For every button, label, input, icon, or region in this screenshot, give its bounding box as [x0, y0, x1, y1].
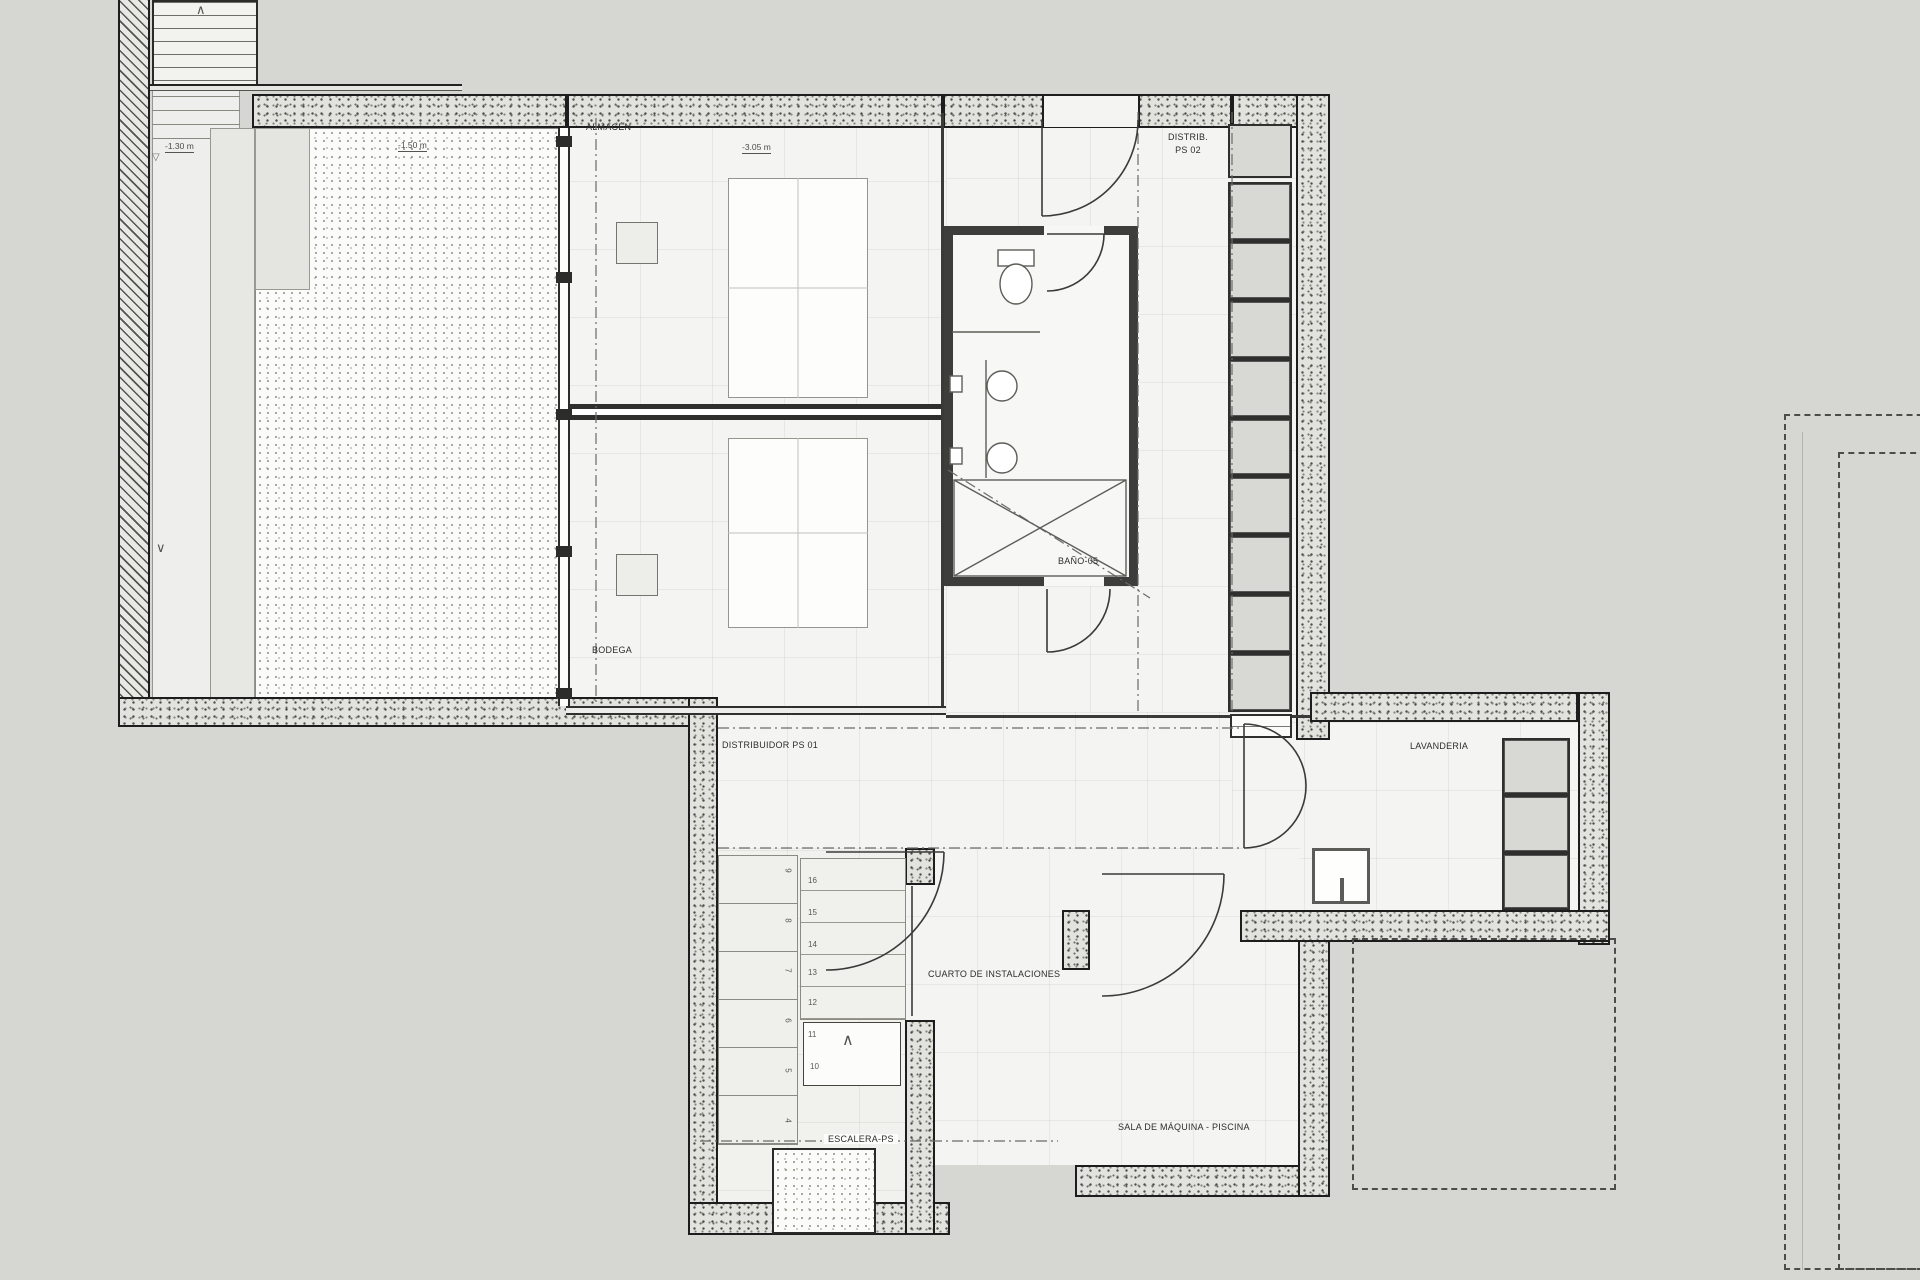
- bathroom-walls: [944, 226, 1138, 586]
- lavanderia-east-wall: [1578, 692, 1610, 945]
- stair-void-stipple: [772, 1148, 876, 1234]
- level-label-terrace: -1.50 m: [398, 140, 427, 152]
- level-marker-icon: ▽: [152, 152, 160, 163]
- room-label-distrib-ps02-line2: PS 02: [1152, 145, 1224, 155]
- column-box-1: [616, 222, 658, 264]
- left-retaining-wall: [118, 0, 150, 715]
- pier: [565, 94, 569, 128]
- room-label-sala: SALA DE MÁQUINA - PISCINA: [1118, 1122, 1250, 1132]
- stair-side-flight: [718, 855, 798, 1145]
- storage-rack-1: [728, 178, 868, 398]
- stair-direction-up-icon: ∧: [196, 2, 206, 18]
- stair-number: 11: [808, 1030, 816, 1039]
- stair-direction-down-icon: ∨: [156, 540, 166, 556]
- window-mullion: [556, 409, 572, 420]
- floor-plan-canvas: ∧ ∨: [0, 0, 1920, 1280]
- room-label-lavanderia: LAVANDERIA: [1410, 741, 1468, 751]
- almacen-bodega-divider-wall: [566, 404, 946, 420]
- sala-south-wall: [1075, 1165, 1330, 1197]
- terrace-planter: [255, 128, 310, 290]
- stair-number: 13: [808, 968, 817, 977]
- north-wall: [252, 94, 1330, 128]
- level-label-exterior: -1.30 m: [165, 141, 194, 153]
- stair-number-side: 8: [784, 918, 793, 922]
- window-mullion: [556, 272, 572, 283]
- stair-number: 15: [808, 908, 817, 917]
- stair-number-side: 5: [784, 1068, 793, 1072]
- lavanderia-north-wall: [1310, 692, 1578, 722]
- window-mullion: [556, 136, 572, 147]
- room-label-escalera: ESCALERA-PS: [824, 1134, 898, 1144]
- stair-number: 14: [808, 940, 817, 949]
- column-box-2: [616, 554, 658, 596]
- stair-number: 16: [808, 876, 817, 885]
- window-mullion: [556, 688, 572, 699]
- corridor-west-wall: [688, 697, 718, 1235]
- sala-east-wall: [1298, 940, 1330, 1197]
- window-mullion: [556, 546, 572, 557]
- stair-number-side: 7: [784, 968, 793, 972]
- stair-number-side: 6: [784, 1018, 793, 1022]
- stair-number-side: 9: [784, 868, 793, 872]
- pier: [1230, 94, 1234, 128]
- escalera-east-wall-top: [905, 848, 935, 885]
- stair-number-side: 4: [784, 1118, 793, 1122]
- retaining-edge: [150, 84, 462, 91]
- bodega-south-wall: [566, 706, 946, 715]
- sala-west-stub-wall: [1062, 910, 1090, 970]
- storage-rack-2: [728, 438, 868, 628]
- east-wall-upper: [1296, 94, 1330, 740]
- bathroom-door-gap-bottom: [1044, 576, 1104, 586]
- upper-floor-projection: [1352, 938, 1616, 1190]
- stair-number: 12: [808, 998, 817, 1007]
- closet-top-box: [1228, 124, 1292, 178]
- lavanderia-shelves: [1502, 738, 1570, 910]
- bathroom-door-gap-top: [1044, 226, 1104, 236]
- closet-drawer: [1230, 714, 1292, 738]
- room-label-distribuidor-ps01: DISTRIBUIDOR PS 01: [722, 740, 818, 750]
- room-label-cuarto: CUARTO DE INSTALACIONES: [928, 969, 1060, 979]
- corridor-ps01-floor: [715, 712, 1240, 850]
- walkway-strip: [210, 128, 255, 705]
- room-label-bano: BAÑO-05: [1058, 556, 1098, 566]
- level-label-interior: -3.05 m: [742, 142, 771, 154]
- pool-outline-inner: [1838, 452, 1920, 1270]
- pool-edge-line: [1802, 432, 1803, 1270]
- sala-cuarto-floor: [905, 848, 1300, 1165]
- escalera-east-wall-bottom: [905, 1020, 935, 1235]
- room-label-bodega: BODEGA: [592, 645, 632, 655]
- north-wall-door-opening: [1042, 96, 1140, 127]
- room-label-almacen: ALMACÉN: [586, 122, 631, 132]
- washer-drain-icon: [1340, 878, 1344, 904]
- stair-direction-up-icon: ∧: [842, 1030, 854, 1050]
- closet-shelves: [1228, 182, 1292, 712]
- stair-number: 10: [810, 1062, 819, 1071]
- room-label-distrib-ps02-line1: DISTRIB.: [1152, 132, 1224, 142]
